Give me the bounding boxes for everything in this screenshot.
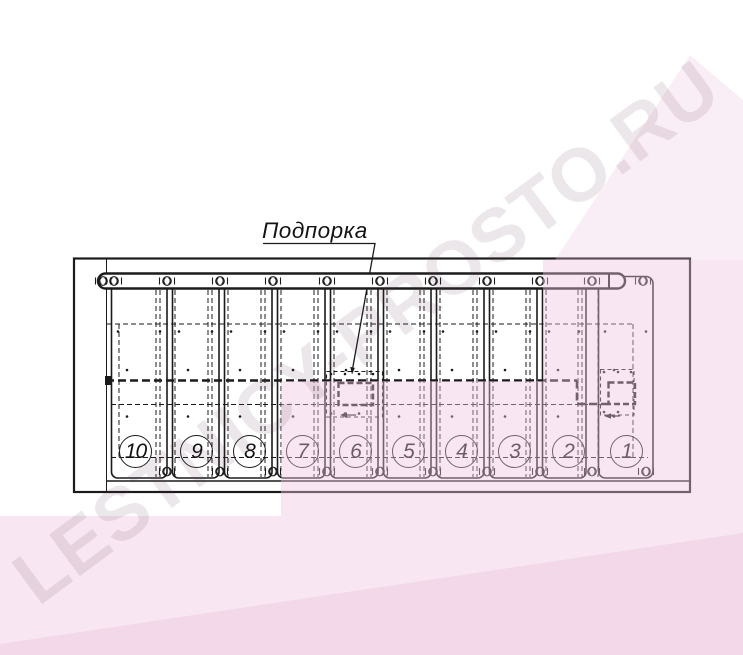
step-number-2: 2 [552, 435, 585, 468]
step-number-5-text: 5 [403, 440, 414, 464]
step-number-10: 10 [119, 435, 152, 468]
stair-plan-page: Подпорка 10 9 8 7 6 5 4 3 2 1 LESTNICY-P… [0, 0, 743, 655]
step-number-1-text: 1 [621, 440, 632, 464]
step-number-3: 3 [498, 435, 531, 468]
step-number-9: 9 [180, 435, 213, 468]
step-number-3-text: 3 [509, 440, 520, 464]
step-number-6: 6 [339, 435, 372, 468]
step-number-10-text: 10 [125, 440, 146, 464]
step-number-8: 8 [233, 435, 266, 468]
stringer-profile-end-mark [105, 376, 112, 385]
stair-plan-drawing [0, 0, 743, 655]
step-number-7: 7 [286, 435, 319, 468]
step-number-4-text: 4 [456, 440, 467, 464]
support-callout-label: Подпорка [262, 218, 368, 244]
step-number-5: 5 [392, 435, 425, 468]
step-number-7-text: 7 [297, 440, 308, 464]
step-number-6-text: 6 [350, 440, 361, 464]
step-number-9-text: 9 [191, 440, 202, 464]
step-number-8-text: 8 [244, 440, 255, 464]
step-number-4: 4 [445, 435, 478, 468]
handrail-bar [98, 274, 625, 289]
step-number-2-text: 2 [563, 440, 574, 464]
step-number-1: 1 [610, 435, 643, 468]
